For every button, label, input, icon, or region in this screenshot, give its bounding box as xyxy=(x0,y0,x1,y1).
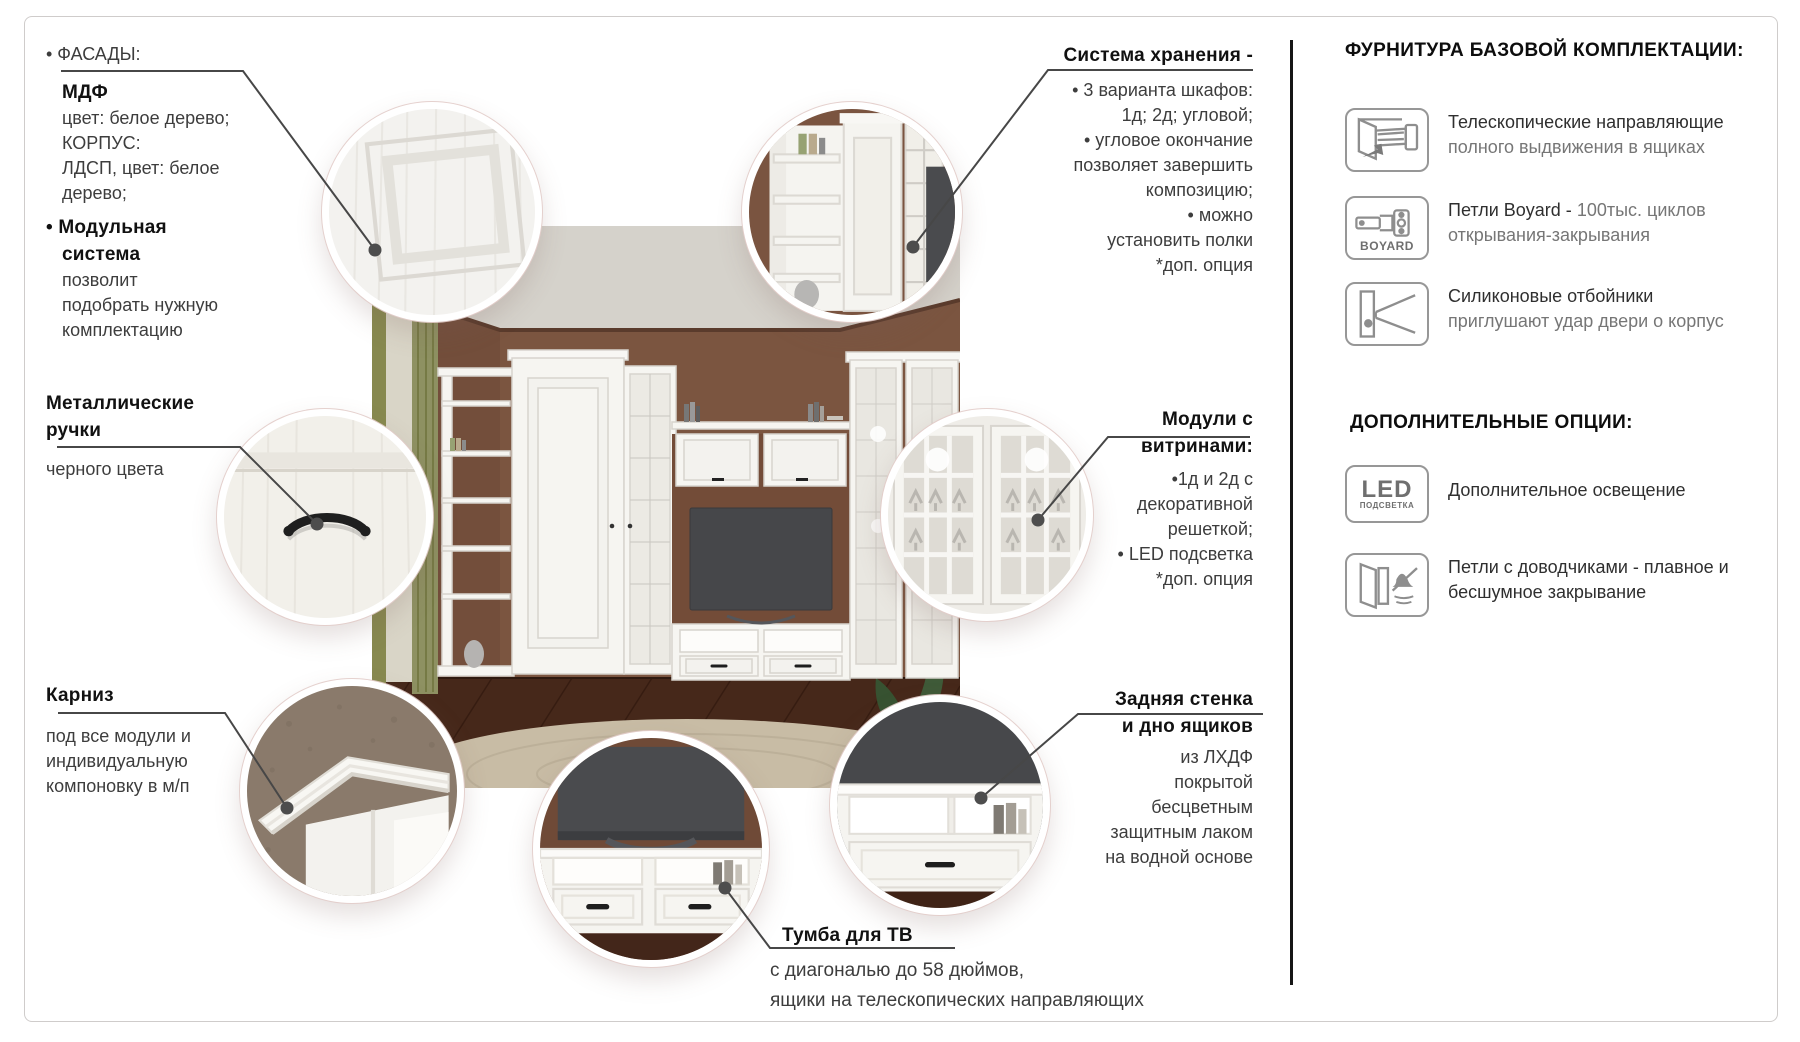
silicone-bumper-icon xyxy=(1345,282,1429,346)
vitrines-line: • LED подсветка xyxy=(993,542,1253,567)
furniture-infographic: • ФАСАДЫ: МДФ цвет: белое дерево; КОРПУС… xyxy=(0,0,1800,1042)
soft-close-hinge-icon xyxy=(1345,553,1429,617)
tv-stand-line: с диагональю до 58 дюймов, xyxy=(770,956,1230,986)
sidebar-divider xyxy=(1290,40,1293,985)
callout-text-vitrines: Модули с витринами: •1д и 2д с декоратив… xyxy=(993,406,1253,592)
sidebar-item-line1: Телескопические направляющие xyxy=(1448,110,1800,135)
facades-bullet: • ФАСАДЫ: xyxy=(46,42,276,67)
facades-line: подобрать нужную xyxy=(46,293,276,318)
callout-text-handles: Металлические ручки черного цвета xyxy=(46,390,276,482)
boyard-label: BOYARD xyxy=(1360,241,1414,251)
sidebar-item-line2: полного выдвижения в ящиках xyxy=(1448,135,1800,160)
tv-stand-title: Тумба для ТВ xyxy=(770,922,1230,949)
storage-title: Система хранения - xyxy=(973,42,1253,69)
cornice-line: под все модули и xyxy=(46,724,276,749)
storage-line: • угловое окончание xyxy=(973,128,1253,153)
vitrines-title: витринами: xyxy=(993,433,1253,460)
boyard-dark-text: Петли Boyard - xyxy=(1448,200,1572,220)
rear-line: из ЛХДФ xyxy=(953,745,1253,770)
facades-line: позволит xyxy=(46,268,276,293)
cornice-line: компоновку в м/п xyxy=(46,774,276,799)
rear-title: Задняя стенка xyxy=(953,686,1253,713)
sidebar-item-line1: Дополнительное освещение xyxy=(1448,478,1800,503)
facades-line: ЛДСП, цвет: белое xyxy=(46,156,276,181)
callout-text-cornice: Карниз под все модули и индивидуальную к… xyxy=(46,682,276,799)
vitrines-line: •1д и 2д с xyxy=(993,467,1253,492)
handles-title: Металлические xyxy=(46,390,276,417)
callout-text-facades: • ФАСАДЫ: МДФ цвет: белое дерево; КОРПУС… xyxy=(46,42,276,343)
vitrines-line: решеткой; xyxy=(993,517,1253,542)
callout-text-tv-stand: Тумба для ТВ с диагональю до 58 дюймов, … xyxy=(770,922,1230,1016)
storage-line: *доп. опция xyxy=(973,253,1253,278)
storage-line: • можно xyxy=(973,203,1253,228)
boyard-gray-text: 100тыс. циклов xyxy=(1577,200,1706,220)
storage-line: 1д; 2д; угловой; xyxy=(973,103,1253,128)
vitrines-line: *доп. опция xyxy=(993,567,1253,592)
sidebar-item-line1: Петли Boyard - 100тыс. циклов xyxy=(1448,198,1800,223)
led-label: LED xyxy=(1362,479,1413,501)
storage-line: установить полки xyxy=(973,228,1253,253)
storage-line: позволяет завершить xyxy=(973,153,1253,178)
callout-photo-mdf-facade xyxy=(322,102,542,322)
facades-line: цвет: белое дерево; xyxy=(46,106,276,131)
handles-line: черного цвета xyxy=(46,457,276,482)
storage-line: композицию; xyxy=(973,178,1253,203)
led-light-icon: LED ПОДСВЕТКА xyxy=(1345,465,1429,523)
callout-text-rear-wall: Задняя стенка и дно ящиков из ЛХДФ покры… xyxy=(953,686,1253,870)
storage-line: • 3 варианта шкафов: xyxy=(973,78,1253,103)
vitrines-line: декоративной xyxy=(993,492,1253,517)
sidebar-item-line2: приглушают удар двери о корпус xyxy=(1448,309,1800,334)
rear-line: на водной основе xyxy=(953,845,1253,870)
facades-line: система xyxy=(46,241,276,268)
facades-modular: • Модульная xyxy=(46,214,276,241)
callout-photo-storage-system xyxy=(742,102,962,322)
boyard-hinge-icon: BOYARD xyxy=(1345,196,1429,260)
facades-line: дерево; xyxy=(46,181,276,206)
handles-title: ручки xyxy=(46,417,276,444)
rear-line: покрытой xyxy=(953,770,1253,795)
facades-mdf: МДФ xyxy=(46,79,276,106)
sidebar-item-line1: Петли с доводчиками - плавное и xyxy=(1448,555,1800,580)
sidebar-header-base: ФУРНИТУРА БАЗОВОЙ КОМПЛЕКТАЦИИ: xyxy=(1345,40,1744,62)
facades-line: КОРПУС: xyxy=(46,131,276,156)
telescopic-slides-icon xyxy=(1345,108,1429,172)
sidebar-item-line1: Силиконовые отбойники xyxy=(1448,284,1800,309)
callout-photo-tv-stand xyxy=(533,731,769,967)
sidebar-item-line2: открывания-закрывания xyxy=(1448,223,1800,248)
vitrines-title: Модули с xyxy=(993,406,1253,433)
sidebar-header-options: ДОПОЛНИТЕЛЬНЫЕ ОПЦИИ: xyxy=(1350,412,1633,434)
tv-stand-line: ящики на телескопических направляющих xyxy=(770,986,1230,1016)
sidebar-item-line2: бесшумное закрывание xyxy=(1448,580,1800,605)
rear-line: защитным лаком xyxy=(953,820,1253,845)
facades-line: комплектацию xyxy=(46,318,276,343)
tv xyxy=(690,508,832,623)
cornice-line: индивидуальную xyxy=(46,749,276,774)
led-sublabel: ПОДСВЕТКА xyxy=(1360,501,1415,510)
rear-line: бесцветным xyxy=(953,795,1253,820)
rear-title: и дно ящиков xyxy=(953,713,1253,740)
callout-text-storage: Система хранения - • 3 варианта шкафов: … xyxy=(973,42,1253,278)
cornice-title: Карниз xyxy=(46,682,276,709)
